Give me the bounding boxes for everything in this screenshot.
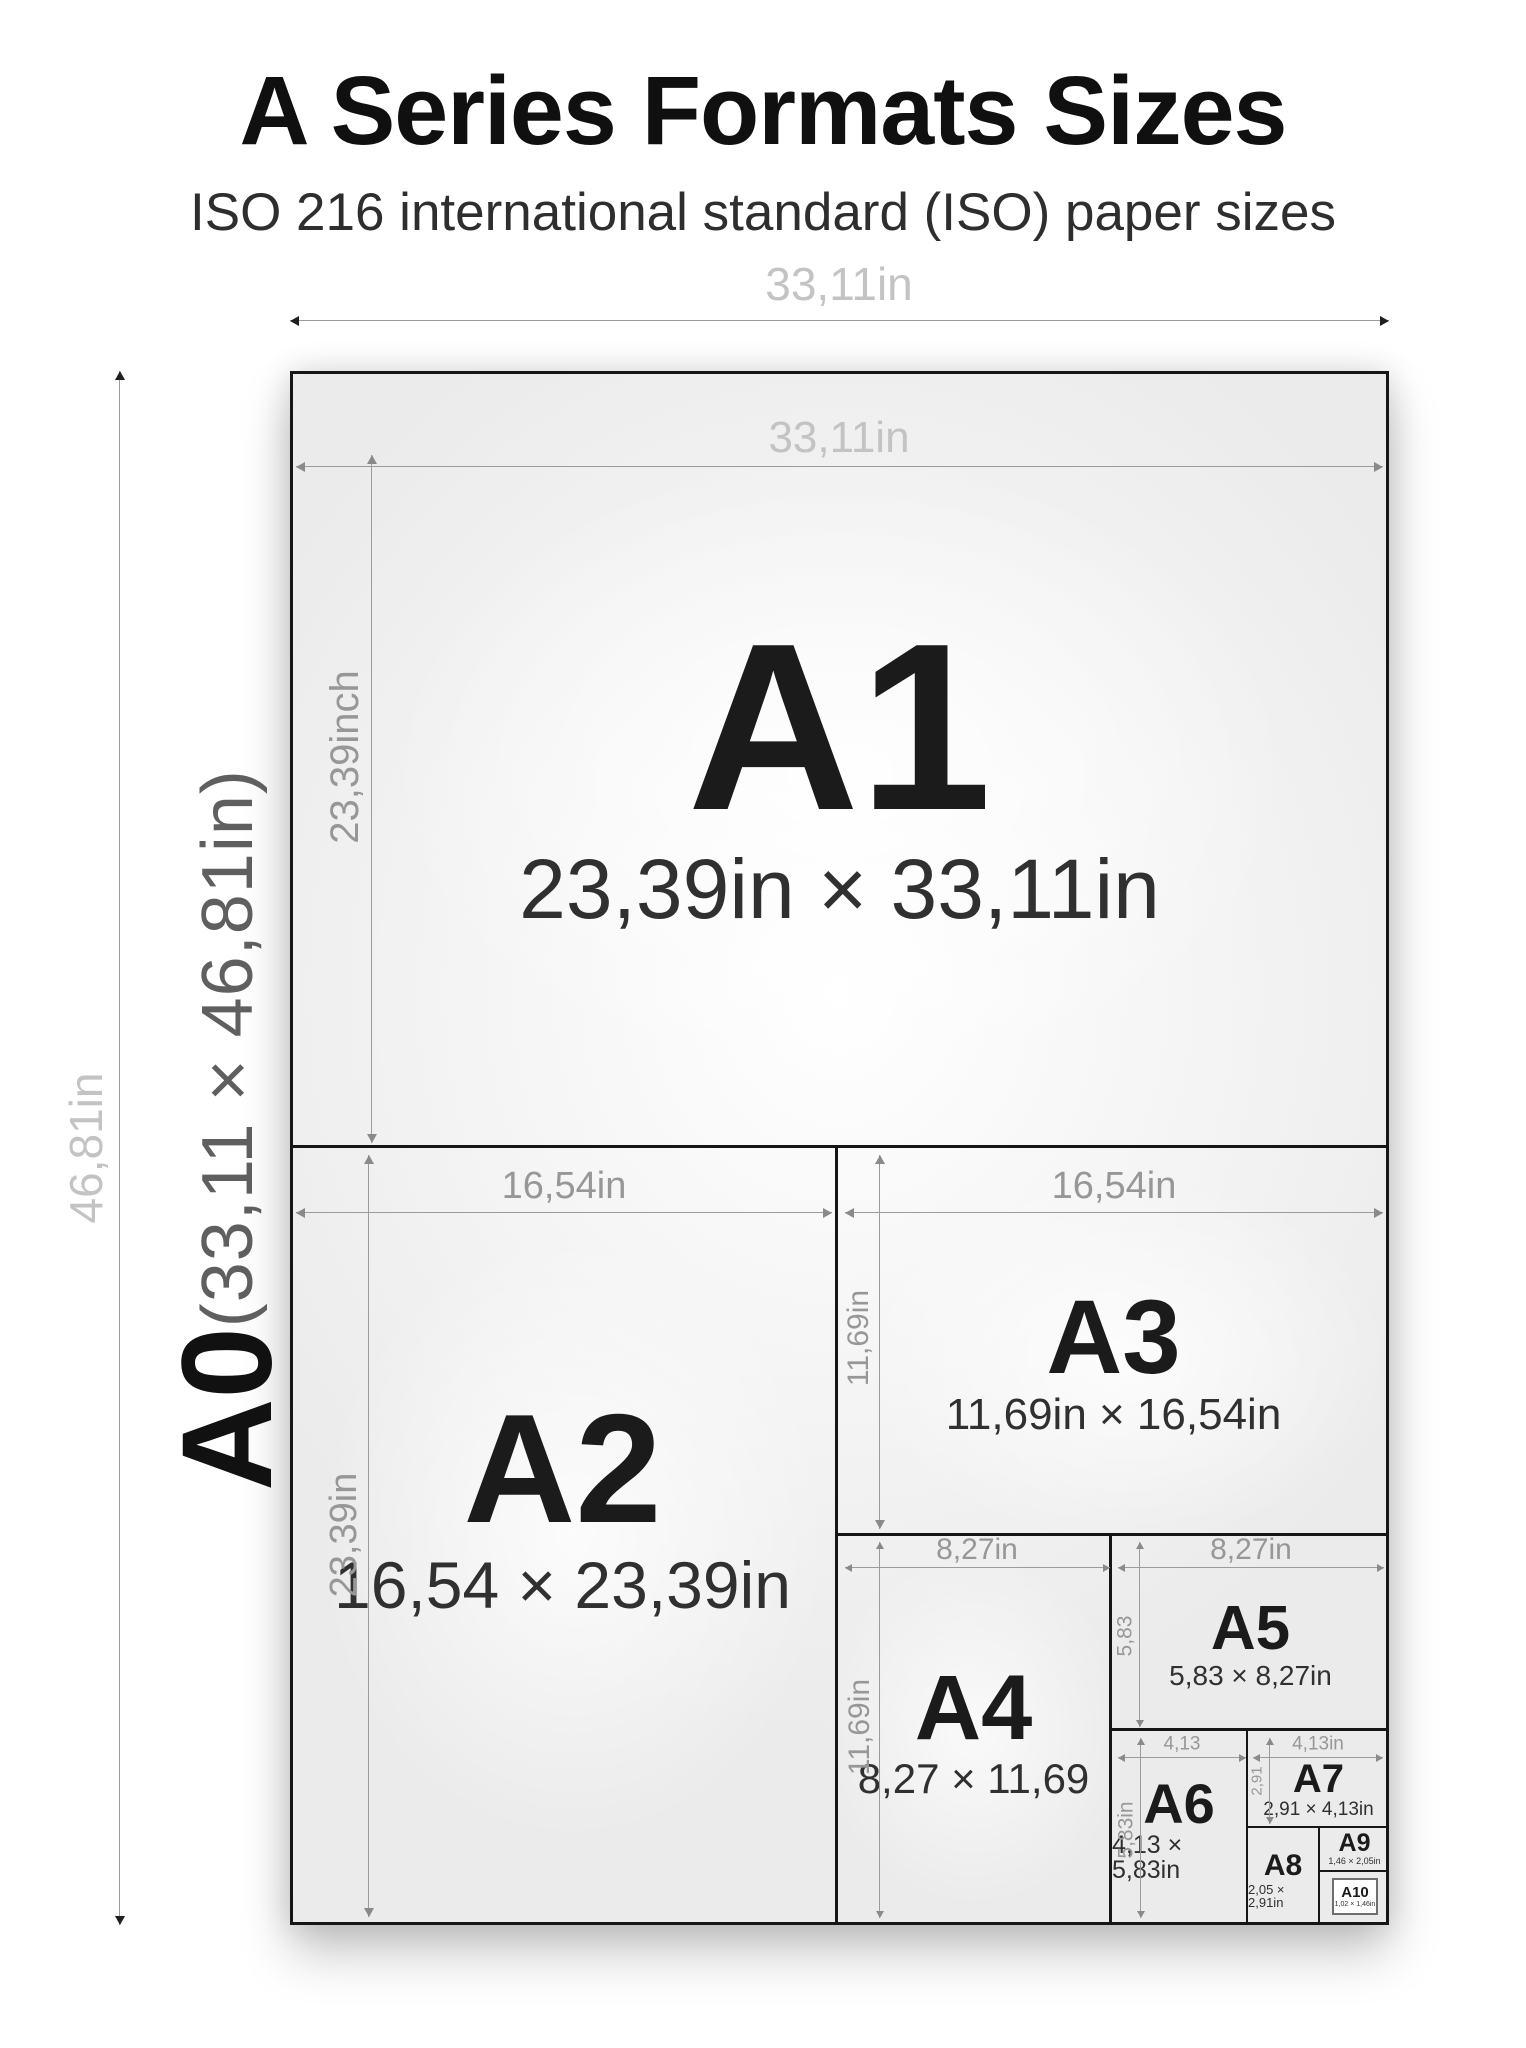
a3-width-dim-arrow	[845, 1212, 1383, 1213]
a1-width-dim-arrow	[296, 466, 1383, 467]
a0-dimensions: (33,11 × 46,81in)	[192, 769, 264, 1327]
a5-height-dim-arrow	[1139, 1542, 1140, 1727]
a6-width-dim-label: 4,13	[1164, 1735, 1201, 1754]
a9-name: A9	[1339, 1832, 1371, 1856]
a0-name: A0	[164, 1327, 292, 1491]
a3-height-dim-label: 11,69in	[844, 1290, 874, 1386]
a6-height-dim-label: 5,83in	[1116, 1801, 1137, 1858]
paper-sizes-diagram: ASeries Formats Sizes ISO 216 internatio…	[0, 0, 1526, 2048]
page-subtitle: ISO 216 international standard (ISO) pap…	[0, 186, 1526, 239]
a6-height-dim-arrow	[1140, 1738, 1141, 1918]
a3-name: A3	[1046, 1288, 1180, 1388]
paper-a10: A10 1,02 × 1,46in	[1332, 1878, 1378, 1915]
a7-width-dim-arrow	[1253, 1757, 1383, 1758]
a4-height-dim-arrow	[879, 1542, 880, 1918]
a1-name: A1	[687, 615, 991, 841]
a7-name: A7	[1293, 1760, 1344, 1798]
a4-name: A4	[915, 1665, 1033, 1752]
a5-width-dim-arrow	[1118, 1567, 1384, 1568]
a3-height-dim-arrow	[879, 1155, 880, 1529]
a7-width-dim-label: 4,13in	[1292, 1735, 1344, 1754]
a3-size: 11,69in × 16,54in	[946, 1393, 1282, 1437]
a1-height-dim-label: 23,39inch	[325, 670, 365, 843]
title-rest: Series Formats Sizes	[331, 56, 1287, 165]
a1-height-dim-arrow	[371, 455, 372, 1143]
a4-width-dim-arrow	[845, 1567, 1110, 1568]
a4-height-dim-label: 11,69in	[845, 1679, 875, 1775]
a0-width-dim-arrow	[290, 320, 1389, 321]
a3-width-dim-label: 16,54in	[1052, 1167, 1177, 1205]
a5-name: A5	[1211, 1600, 1290, 1659]
a5-size: 5,83 × 8,27in	[1169, 1662, 1332, 1690]
a10-size: 1,02 × 1,46in	[1335, 1901, 1376, 1908]
paper-a9: A9 1,46 × 2,05in	[1320, 1828, 1389, 1872]
a1-size: 23,39in × 33,11in	[519, 847, 1160, 931]
a4-size: 8,27 × 11,69	[858, 1758, 1090, 1800]
a2-size: 16,54 × 23,39in	[334, 1552, 791, 1618]
a0-height-dim-label: 46,81in	[63, 1073, 109, 1224]
a7-size: 2,91 × 4,13in	[1263, 1800, 1373, 1819]
a8-size: 2,05 × 2,91in	[1248, 1883, 1318, 1909]
a6-width-dim-arrow	[1118, 1757, 1246, 1758]
a0-width-dim-label: 33,11in	[765, 261, 913, 307]
a9-size: 1,46 × 2,05in	[1328, 1857, 1380, 1866]
a10-name: A10	[1341, 1885, 1369, 1900]
paper-a8: A8 2,05 × 2,91in	[1248, 1828, 1320, 1925]
a2-width-dim-arrow	[296, 1212, 832, 1213]
a8-name: A8	[1264, 1852, 1302, 1881]
a2-width-dim-label: 16,54in	[502, 1167, 627, 1205]
a0-label: A0(33,11 × 46,81in)	[164, 769, 292, 1491]
a1-width-dim-label: 33,11in	[768, 416, 909, 460]
a2-height-dim-arrow	[368, 1155, 369, 1917]
a5-width-dim-label: 8,27in	[1210, 1535, 1292, 1565]
paper-a2: A2 16,54 × 23,39in	[290, 1148, 838, 1925]
a7-height-dim-arrow	[1269, 1738, 1270, 1824]
a6-name: A6	[1143, 1777, 1215, 1830]
title-letter-a: A	[240, 56, 309, 165]
paper-a10-cell: A10 1,02 × 1,46in	[1320, 1872, 1389, 1925]
a4-width-dim-label: 8,27in	[936, 1535, 1018, 1565]
a0-height-dim-arrow	[119, 371, 120, 1925]
paper-a1: A1 23,39in × 33,11in	[290, 371, 1389, 1148]
a0-sheet: A1 23,39in × 33,11in A2 16,54 × 23,39in …	[290, 371, 1389, 1925]
a5-height-dim-label: 5,83	[1115, 1616, 1136, 1657]
page-title: ASeries Formats Sizes	[0, 62, 1526, 159]
a2-height-dim-label: 23,39in	[325, 1473, 363, 1598]
a7-height-dim-label: 2,91	[1250, 1766, 1265, 1795]
a2-name: A2	[463, 1395, 661, 1542]
